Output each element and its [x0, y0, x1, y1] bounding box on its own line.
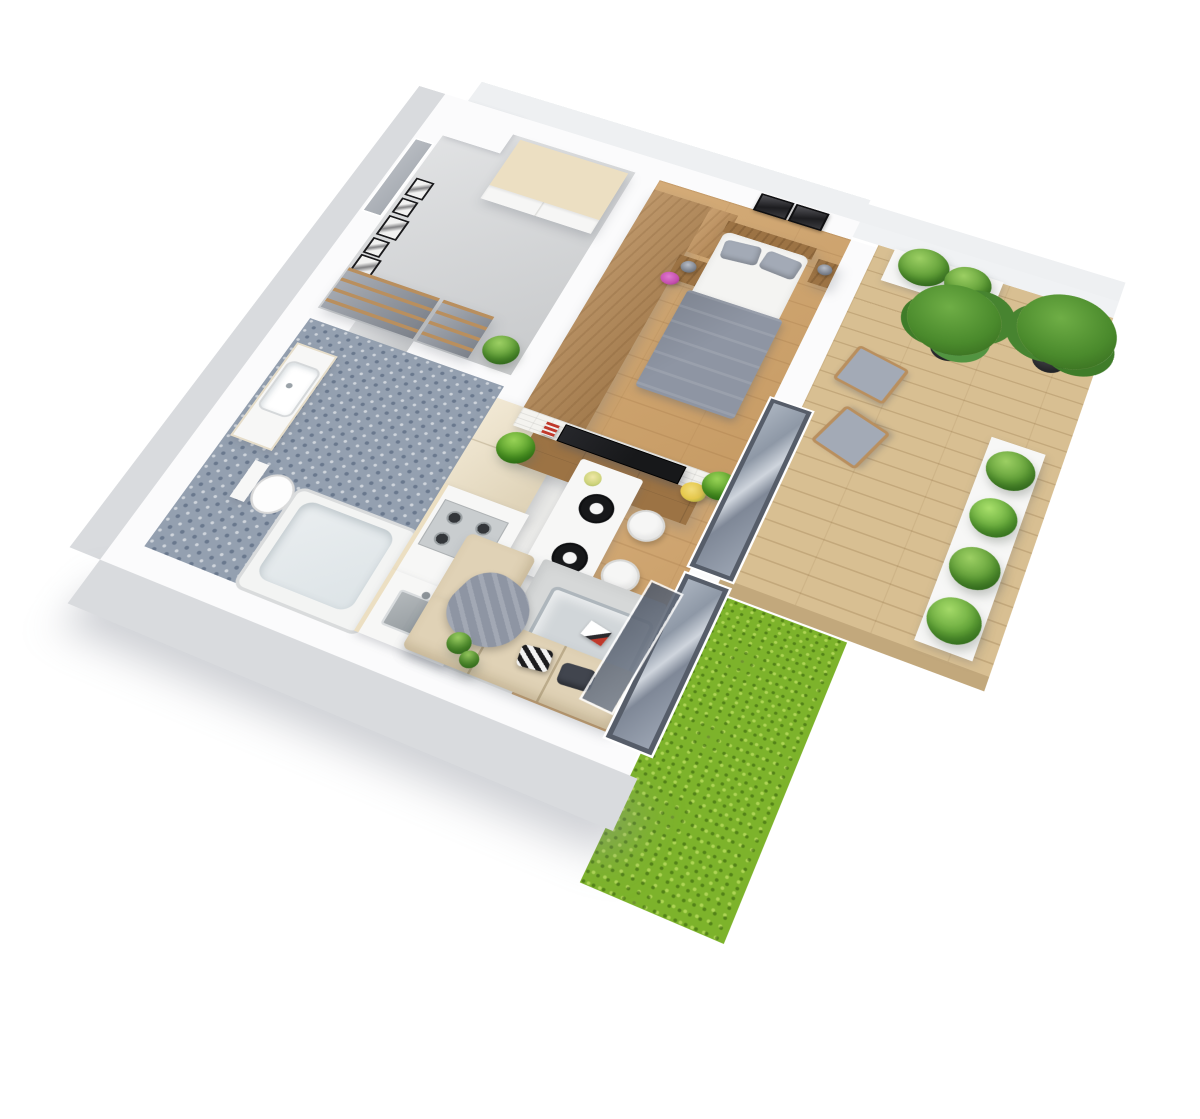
page: { "scene": { "type": "isometric-3d-floor… [0, 0, 1200, 1068]
floor-plan-scene [0, 94, 1119, 1113]
